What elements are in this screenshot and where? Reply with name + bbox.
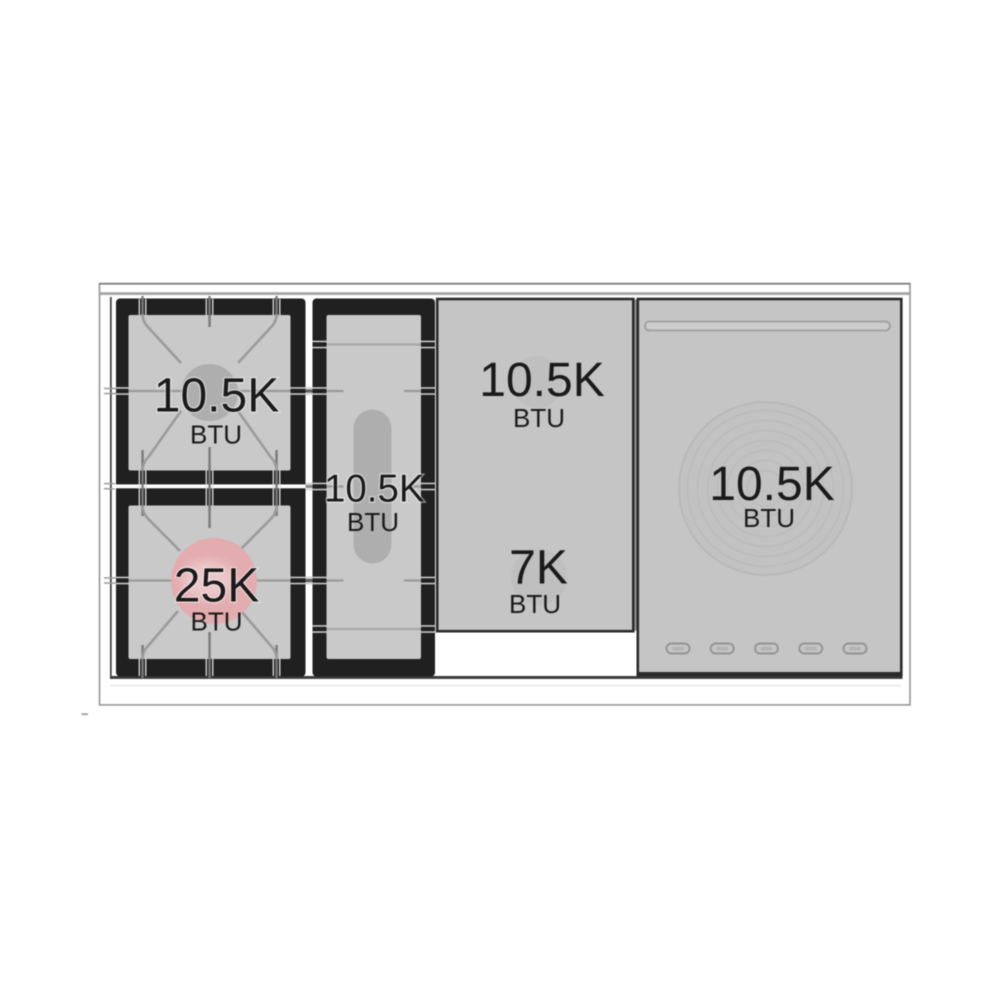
svg-text:10.5K: 10.5K [154,370,279,423]
svg-text:BTU: BTU [513,403,565,433]
svg-text:10.5K: 10.5K [324,468,425,511]
svg-text:BTU: BTU [190,420,242,450]
svg-text:25K: 25K [174,560,259,613]
svg-text:10.5K: 10.5K [479,354,604,407]
svg-text:BTU: BTU [509,589,561,619]
svg-text:BTU: BTU [743,503,795,533]
svg-text:7K: 7K [509,542,568,595]
svg-text:BTU: BTU [191,607,243,637]
svg-text:BTU: BTU [347,507,399,537]
